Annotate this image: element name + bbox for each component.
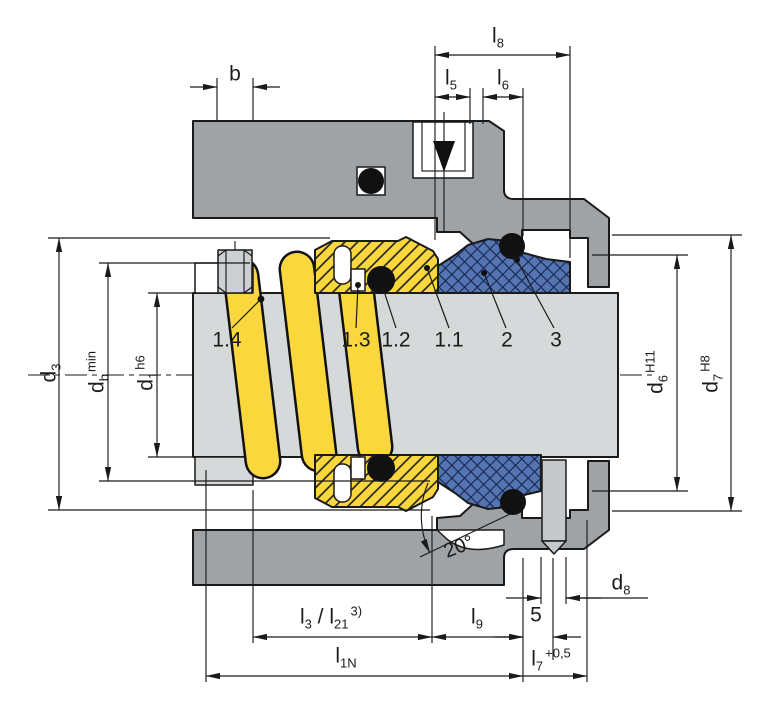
dim-label-l5: l5 [445, 68, 457, 89]
dim-sub: 3 [305, 617, 312, 632]
dim-tolerance: H8 [698, 355, 713, 372]
dim-label-l1N: l1N [335, 646, 356, 667]
dim-text: / l [312, 606, 334, 629]
dim-label-l3-l21: l3 / l213) [300, 607, 362, 628]
dim-sub: 7 [711, 374, 726, 381]
dim-tolerance: H11 [643, 350, 658, 373]
part-label-1-3: 1.3 [341, 330, 370, 351]
dim-sub: 3 [49, 364, 64, 371]
dim-label-d1-h6: d1h6 [136, 355, 157, 390]
spring-slot-top [334, 246, 351, 284]
dim-label-db-min: dbmin [87, 351, 108, 393]
dim-label-l9: l9 [471, 607, 483, 628]
seat-oring-bottom [500, 489, 526, 515]
dim-label-l7: l7+0,5 [531, 649, 571, 670]
dim-text: 5 [530, 604, 542, 627]
part-label-2: 2 [501, 330, 513, 351]
dim-sub: b [97, 374, 112, 381]
dim-text: d [86, 381, 109, 393]
dim-sub: 8 [623, 583, 630, 598]
dim-sub: 1N [340, 656, 357, 671]
dim-label-b: b [229, 64, 241, 85]
d8-hole [542, 460, 566, 554]
part-1-3-ring-bottom [351, 457, 365, 479]
dim-text: d [645, 382, 668, 394]
spring-coil [241, 276, 263, 461]
dim-sub: 6 [656, 375, 671, 382]
dim-label-d8: d8 [612, 573, 631, 594]
technical-drawing-canvas: b l8 l5 l6 d3 dbmin d1h6 d6H11 d7H8 1.4 … [0, 0, 768, 716]
part-label-1-1: 1.1 [434, 330, 463, 351]
dim-label-5: 5 [530, 605, 542, 626]
dim-footnote: 3) [350, 604, 362, 619]
dim-text: d [612, 572, 624, 595]
dim-text: b [229, 63, 241, 86]
dim-sub: 5 [450, 78, 457, 93]
dim-text: d [135, 379, 158, 391]
part-label-1-2: 1.2 [381, 330, 410, 351]
dim-sub: 21 [334, 617, 348, 632]
dim-sub: 6 [502, 78, 509, 93]
spring-coil [297, 269, 319, 454]
part-number: 1.2 [381, 329, 410, 352]
part-number: 3 [550, 329, 562, 352]
spring-slot-bottom [334, 464, 351, 502]
part-number: 1.1 [434, 329, 463, 352]
dim-text: d [38, 371, 61, 383]
shaft-oring-top [367, 266, 395, 294]
dim-label-l8: l8 [492, 26, 504, 47]
set-screw [218, 250, 252, 293]
part-number: 2 [501, 329, 513, 352]
dim-tolerance: min [84, 351, 99, 372]
dim-sub: 7 [536, 659, 543, 674]
dim-sub: 8 [497, 36, 504, 51]
dim-sub: 9 [476, 617, 483, 632]
part-label-3: 3 [550, 330, 562, 351]
dim-label-d3: d3 [39, 364, 60, 383]
cover-oring [358, 168, 384, 194]
dim-label-l6: l6 [497, 68, 509, 89]
part-label-1-4: 1.4 [212, 330, 241, 351]
seat-oring-top [499, 233, 525, 259]
dim-tolerance: h6 [133, 355, 148, 369]
dim-label-d6-H11: d6H11 [646, 350, 667, 394]
part-number: 1.4 [212, 329, 241, 352]
shaft-oring-bottom [367, 454, 395, 482]
dim-text: d [700, 381, 723, 393]
dim-sub: 1 [146, 372, 161, 379]
dim-tolerance: +0,5 [545, 646, 571, 661]
dim-label-d7-H8: d7H8 [701, 355, 722, 393]
part-number: 1.3 [341, 329, 370, 352]
